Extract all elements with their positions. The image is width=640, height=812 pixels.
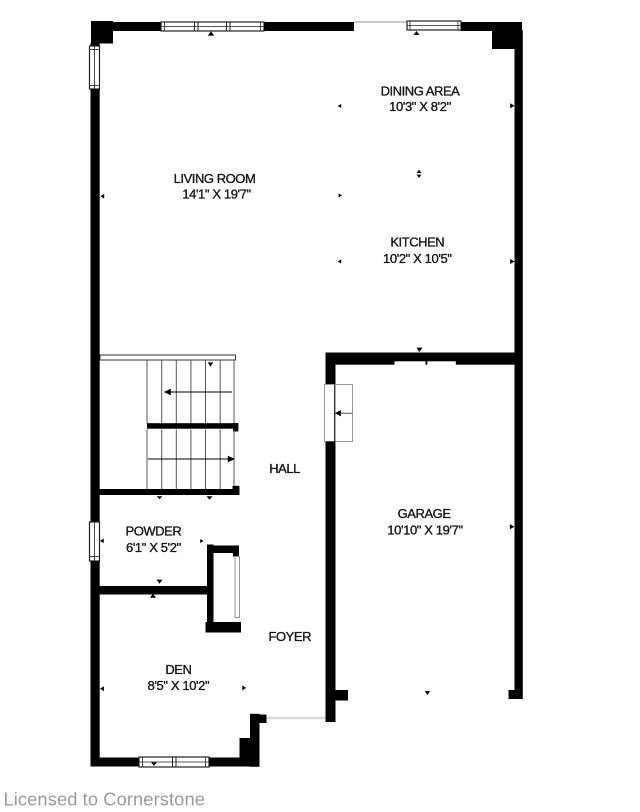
- svg-text:10'2" X 10'5": 10'2" X 10'5": [383, 251, 452, 266]
- svg-text:Licensed to Cornerstone: Licensed to Cornerstone: [4, 789, 205, 810]
- svg-text:14'1" X 19'7": 14'1" X 19'7": [182, 187, 251, 202]
- svg-text:POWDER: POWDER: [125, 524, 181, 539]
- svg-text:6'1" X 5'2": 6'1" X 5'2": [126, 540, 182, 555]
- svg-text:DEN: DEN: [165, 662, 191, 677]
- svg-text:10'10" X 19'7": 10'10" X 19'7": [387, 522, 463, 537]
- svg-text:8'5" X 10'2": 8'5" X 10'2": [148, 678, 210, 693]
- svg-text:FOYER: FOYER: [269, 629, 312, 644]
- svg-text:DINING AREA: DINING AREA: [381, 83, 461, 98]
- svg-text:KITCHEN: KITCHEN: [390, 234, 444, 249]
- svg-text:LIVING ROOM: LIVING ROOM: [174, 171, 256, 186]
- svg-text:10'3" X 8'2": 10'3" X 8'2": [389, 99, 451, 114]
- svg-text:HALL: HALL: [269, 461, 300, 476]
- svg-text:GARAGE: GARAGE: [398, 506, 452, 521]
